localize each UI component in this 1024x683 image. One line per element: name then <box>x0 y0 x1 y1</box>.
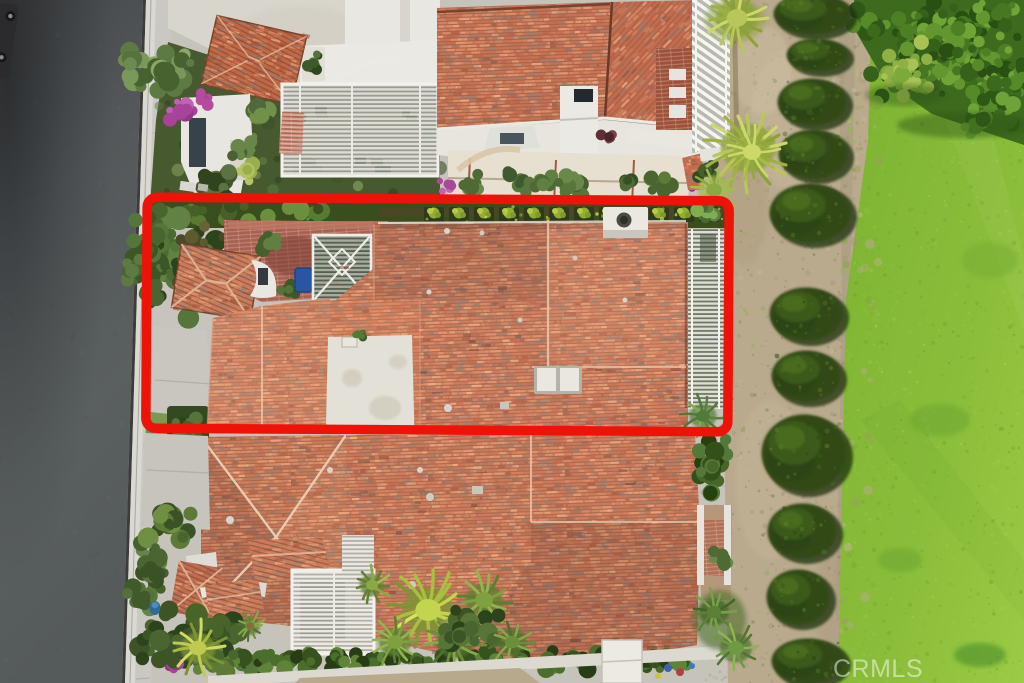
svg-text:CRMLS: CRMLS <box>833 655 923 683</box>
